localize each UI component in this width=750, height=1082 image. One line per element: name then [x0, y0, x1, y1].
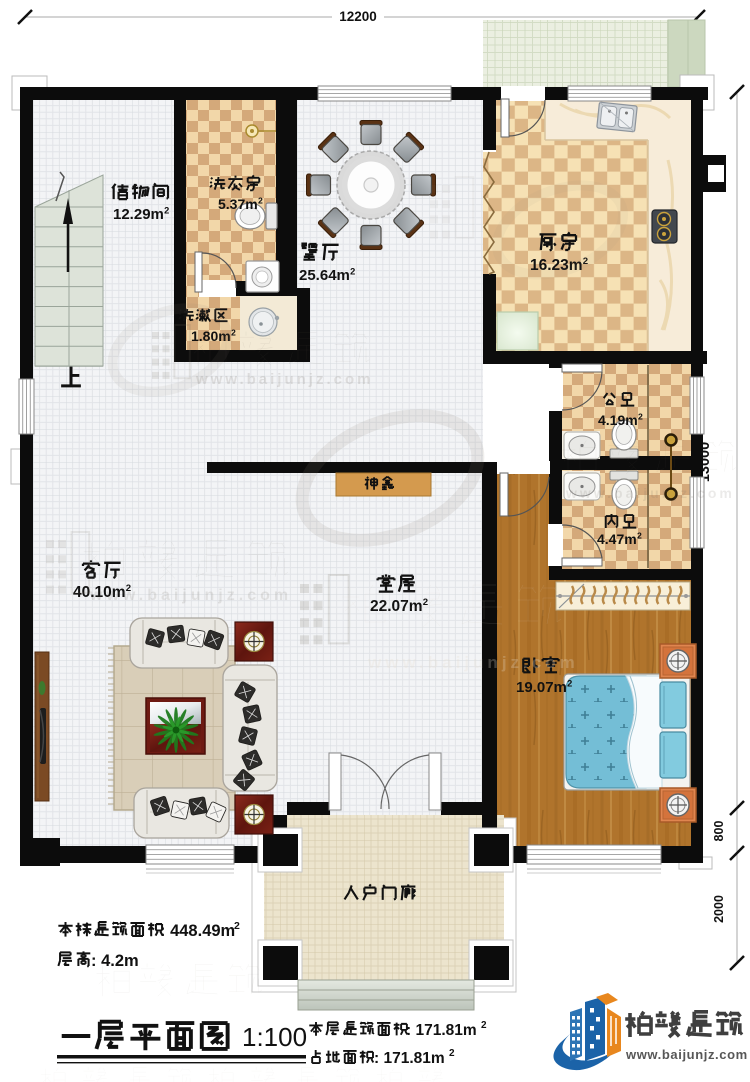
svg-text:: 448.49m: : 448.49m: [160, 922, 235, 940]
svg-text:2: 2: [481, 1020, 487, 1031]
svg-text:22.07m: 22.07m: [370, 598, 423, 615]
svg-text:2000: 2000: [712, 895, 726, 923]
svg-text:www.baijunjz.com: www.baijunjz.com: [367, 653, 579, 672]
svg-text:2: 2: [449, 1048, 455, 1059]
svg-text:www.baijunjz.com: www.baijunjz.com: [565, 485, 735, 501]
svg-text:4.47m: 4.47m: [597, 531, 637, 547]
svg-text:4.19m: 4.19m: [598, 412, 638, 428]
svg-text:2: 2: [234, 920, 240, 932]
svg-text:2: 2: [164, 205, 169, 215]
svg-text:www.baijunjz.com: www.baijunjz.com: [195, 371, 373, 388]
svg-text:19.07m: 19.07m: [516, 679, 567, 696]
svg-text:www.baijunjz.com: www.baijunjz.com: [89, 587, 292, 604]
svg-text:2: 2: [567, 678, 572, 688]
svg-text:1:100: 1:100: [242, 1022, 307, 1052]
svg-text:2: 2: [258, 196, 263, 206]
svg-text:25.64m: 25.64m: [299, 267, 350, 284]
svg-text:800: 800: [712, 821, 726, 842]
svg-text:: 4.2m: : 4.2m: [91, 952, 139, 970]
svg-text:2: 2: [350, 266, 355, 276]
svg-text:: 171.81m: : 171.81m: [406, 1022, 477, 1039]
svg-text:12200: 12200: [339, 9, 377, 24]
svg-text:2: 2: [637, 531, 642, 541]
svg-text:12.29m: 12.29m: [113, 206, 164, 223]
svg-text:2: 2: [638, 412, 643, 422]
svg-text:www.baijunjz.com: www.baijunjz.com: [625, 1047, 748, 1062]
svg-text:: 171.81m: : 171.81m: [374, 1050, 445, 1067]
svg-text:5.37m: 5.37m: [218, 196, 258, 212]
